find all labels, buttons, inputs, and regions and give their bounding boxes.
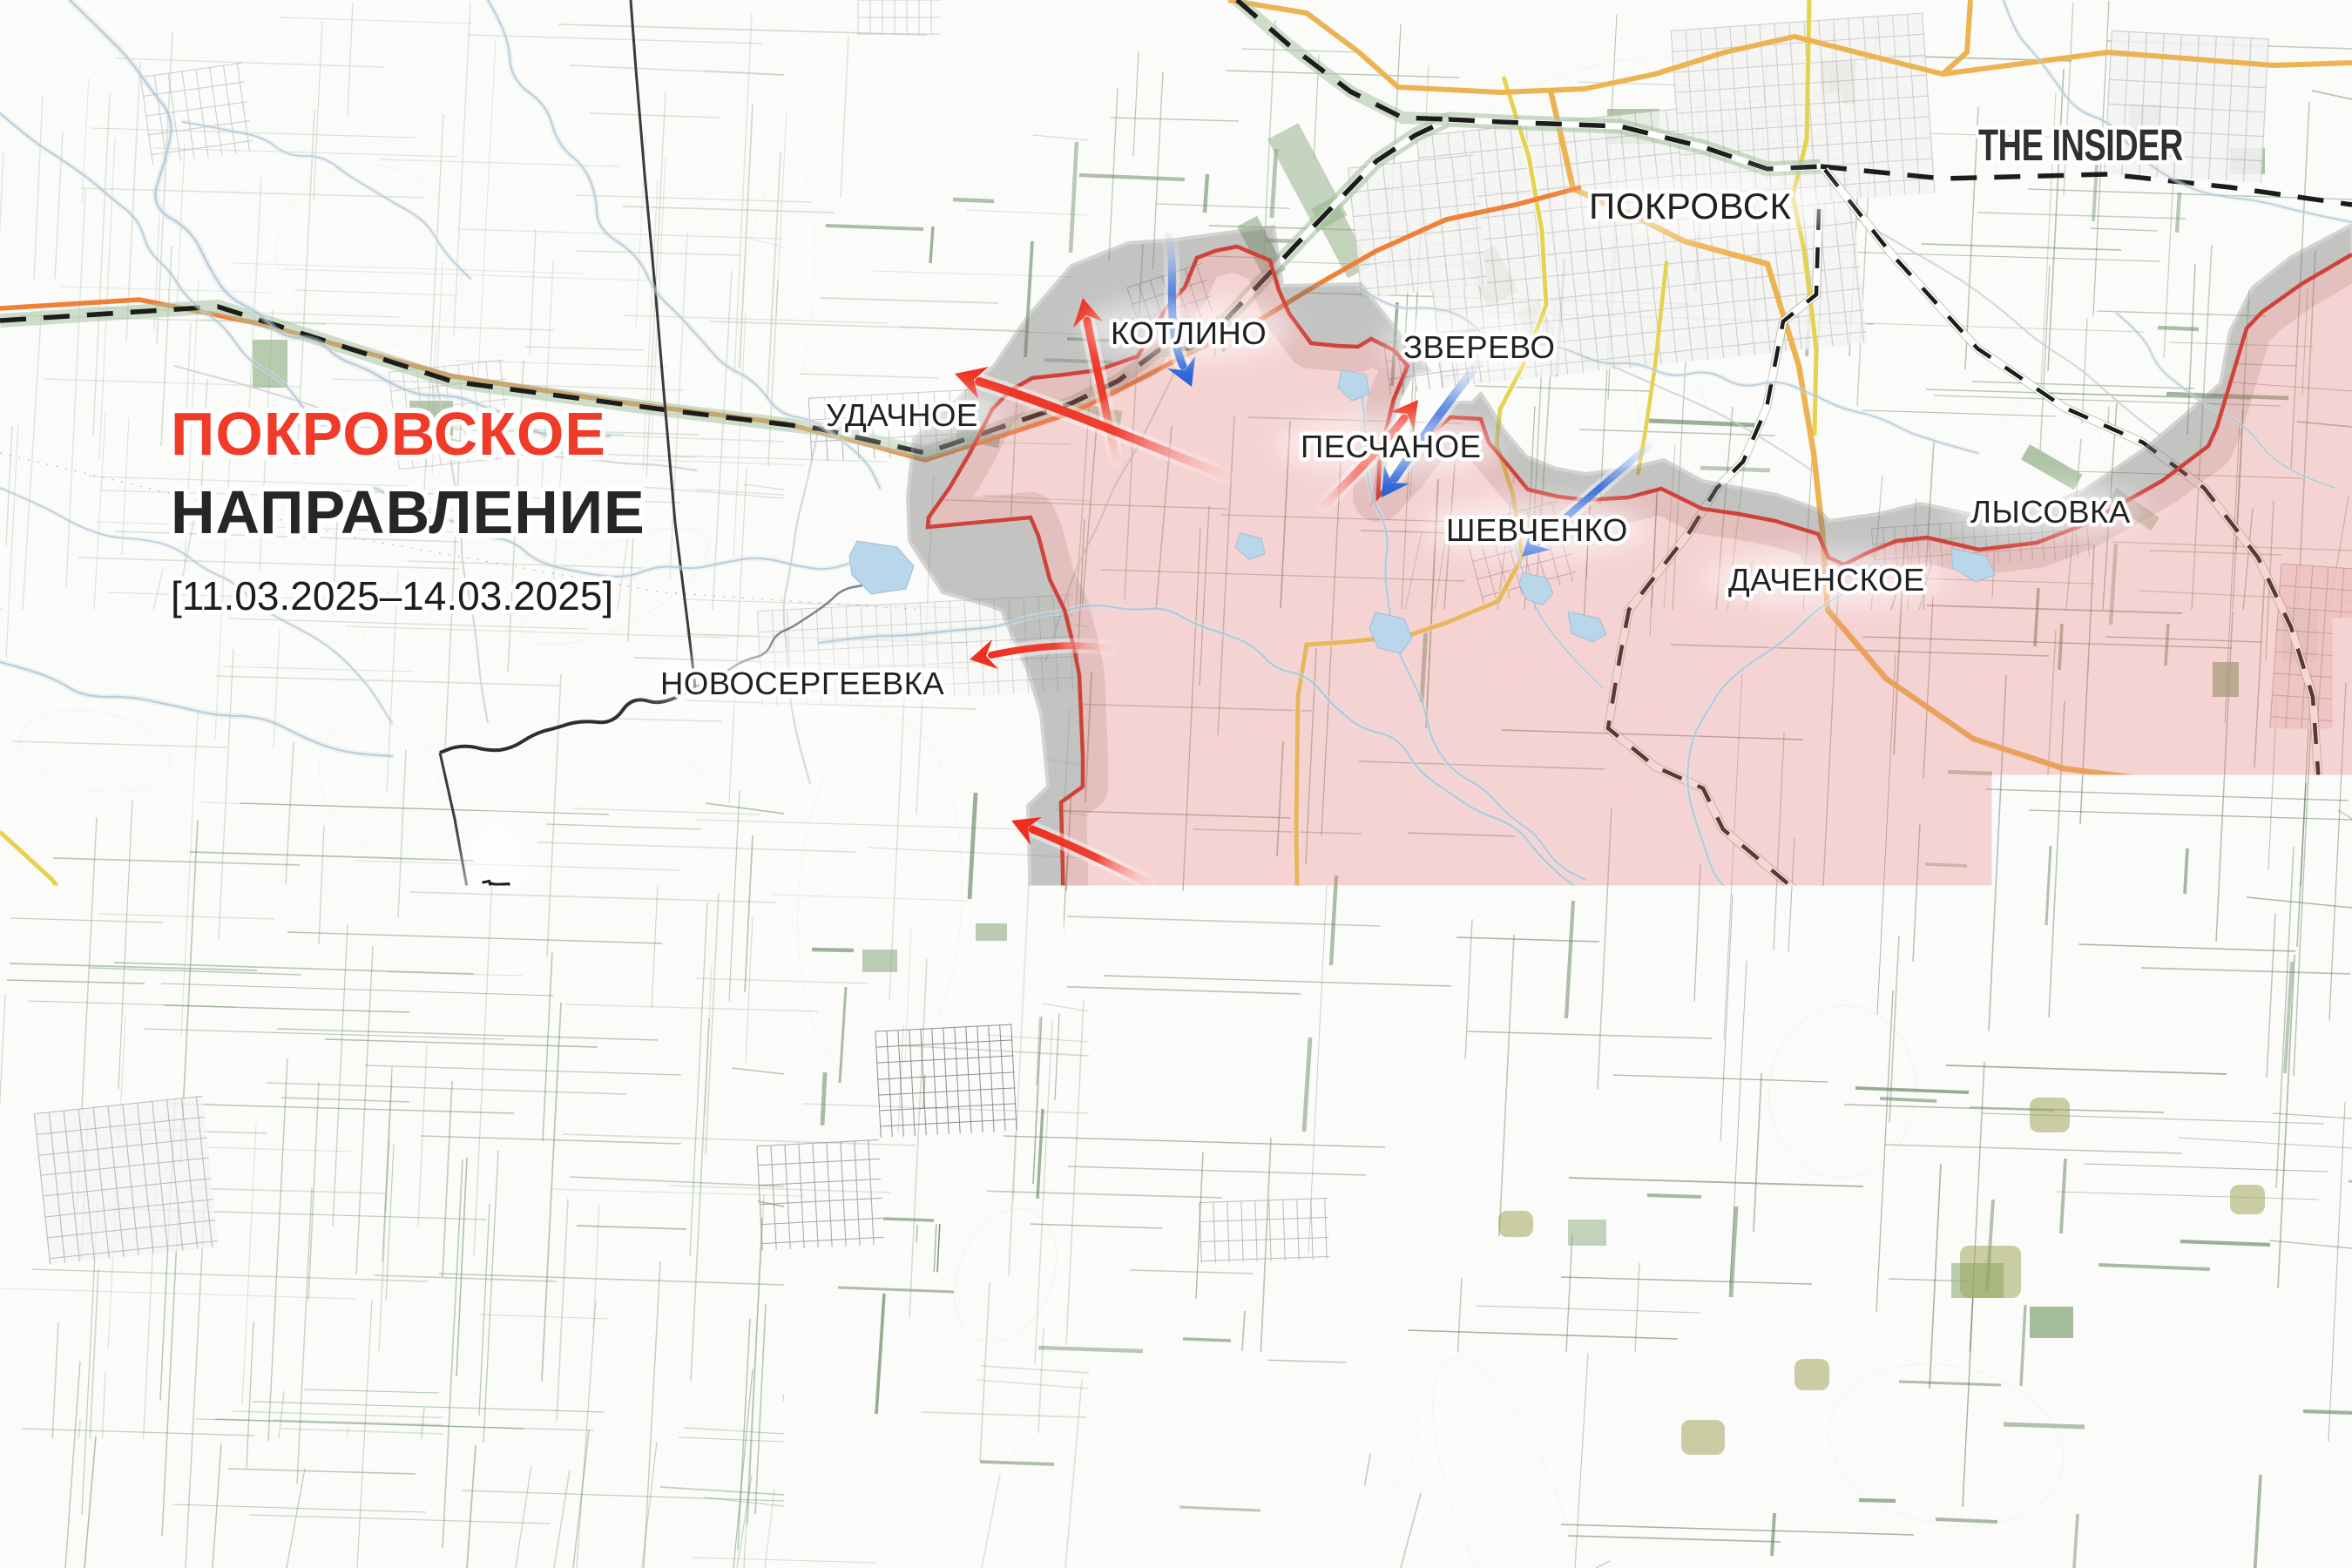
svg-text:НОВОСЕРГЕЕВКА: НОВОСЕРГЕЕВКА (660, 666, 944, 701)
svg-text:ЯСЕНОВОЕ: ЯСЕНОВОЕ (1157, 1191, 1342, 1227)
svg-text:ПЕСЧАНОЕ: ПЕСЧАНОЕ (1301, 429, 1482, 464)
svg-text:ЗВЕРЕВО: ЗВЕРЕВО (1403, 329, 1555, 365)
svg-text:THE INSIDER: THE INSIDER (1978, 119, 2183, 170)
svg-text:ЛЫСОВКА: ЛЫСОВКА (1970, 494, 2131, 530)
svg-text:ПОКРОВСК: ПОКРОВСК (1589, 186, 1792, 226)
svg-text:ПОКРОВСКОЕ: ПОКРОВСКОЕ (171, 400, 606, 468)
svg-text:ДАЧЕНСКОЕ: ДАЧЕНСКОЕ (1728, 562, 1925, 598)
svg-text:ПРЕОБРАЖЕНКА: ПРЕОБРАЖЕНКА (734, 1159, 1004, 1194)
svg-text:Источники: DeepState, Ukraine: Источники: DeepState, Ukraine Control Ma… (1544, 1355, 2213, 1382)
svg-text:НАДЕЖДИНКА: НАДЕЖДИНКА (879, 983, 1108, 1018)
svg-text:[11.03.2025–14.03.2025]: [11.03.2025–14.03.2025] (171, 573, 613, 618)
svg-text:Картографические данные из Ope: Картографические данные из OpenStreetMap (1680, 1415, 2213, 1443)
svg-text:ШЕВЧЕНКО: ШЕВЧЕНКО (1446, 512, 1628, 548)
svg-text:MilitaryLand, Інформаційний сп: MilitaryLand, Інформаційний спротив, Bla… (1583, 1382, 2215, 1410)
svg-text:КОТЛИНО: КОТЛИНО (1111, 315, 1267, 351)
svg-text:НАПРАВЛЕНИЕ: НАПРАВЛЕНИЕ (171, 478, 645, 546)
svg-text:УДАЧНОЕ: УДАЧНОЕ (826, 397, 978, 433)
